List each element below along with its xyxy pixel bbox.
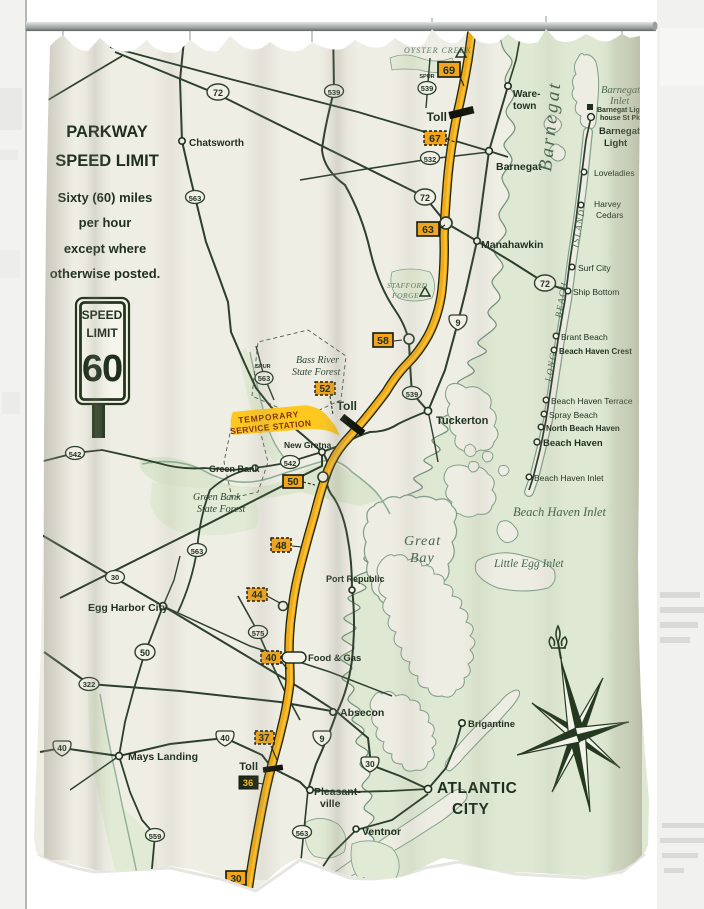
svg-text:30: 30 — [111, 573, 119, 582]
svg-text:30: 30 — [365, 759, 375, 769]
svg-text:Green Bank: Green Bank — [193, 492, 241, 503]
svg-text:563: 563 — [296, 829, 309, 838]
svg-text:50: 50 — [140, 648, 150, 658]
svg-text:Chatsworth: Chatsworth — [189, 138, 244, 149]
svg-text:50: 50 — [287, 477, 299, 488]
svg-text:Toll: Toll — [427, 110, 447, 124]
svg-text:563: 563 — [191, 547, 204, 556]
svg-text:67: 67 — [429, 133, 441, 145]
svg-text:State Forest: State Forest — [197, 504, 245, 515]
svg-text:58: 58 — [377, 335, 389, 347]
svg-text:72: 72 — [213, 88, 223, 98]
svg-text:9: 9 — [455, 318, 460, 328]
svg-text:542: 542 — [284, 459, 297, 468]
svg-text:40: 40 — [220, 733, 230, 743]
svg-text:69: 69 — [443, 65, 455, 77]
svg-text:563: 563 — [189, 194, 202, 203]
